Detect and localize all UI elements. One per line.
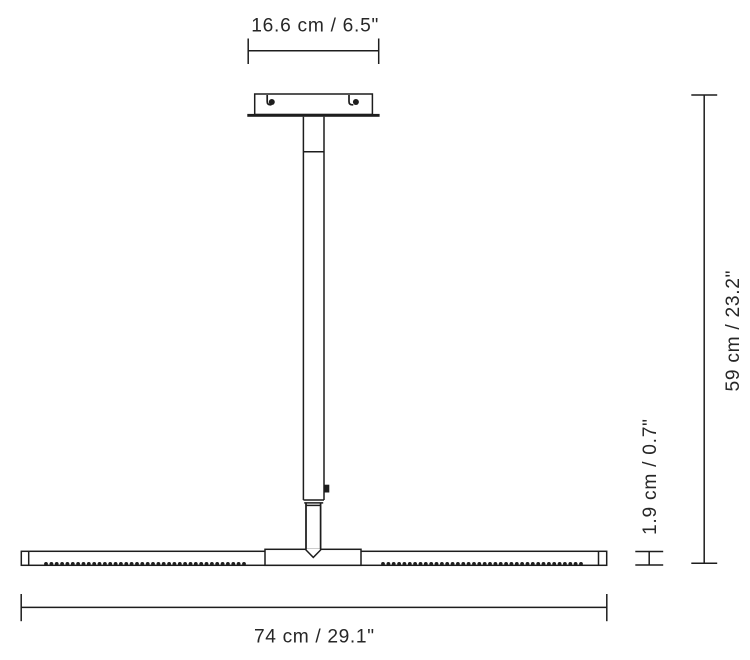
svg-text:59 cm / 23.2": 59 cm / 23.2" [723,271,744,392]
svg-text:16.6 cm / 6.5": 16.6 cm / 6.5" [251,16,378,37]
svg-text:1.9 cm / 0.7": 1.9 cm / 0.7" [640,419,661,535]
svg-text:74 cm / 29.1": 74 cm / 29.1" [254,626,374,647]
